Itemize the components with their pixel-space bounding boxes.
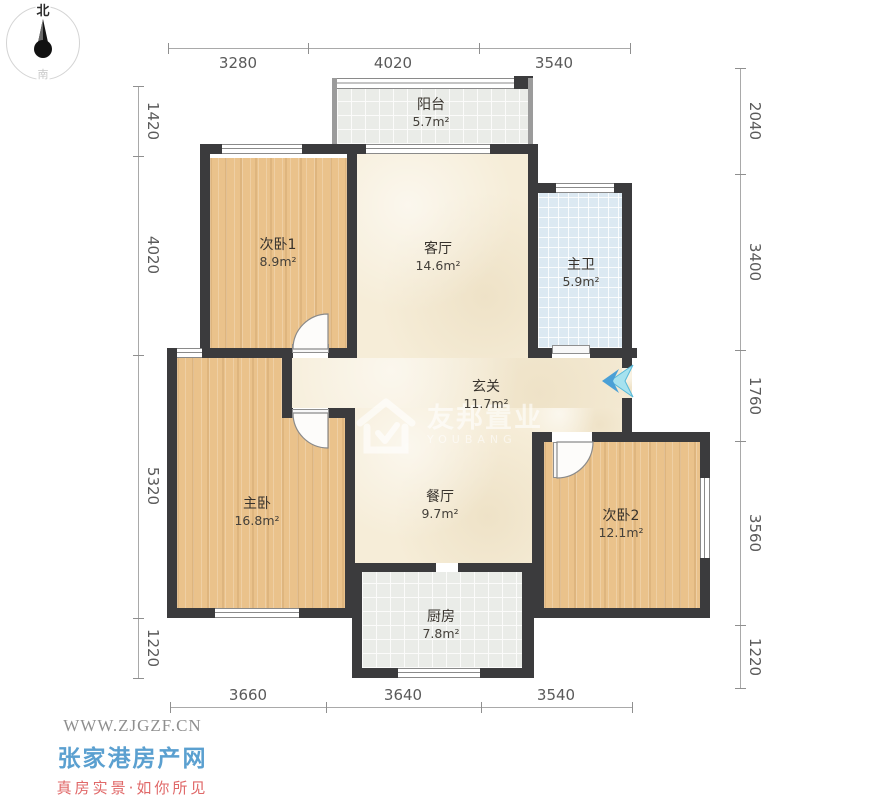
dim-top-3: 3540 [514, 54, 594, 72]
dim-bottom-3: 3540 [516, 686, 596, 704]
dim-tick [735, 625, 746, 626]
wall [205, 348, 293, 358]
dim-line-bottom [170, 707, 632, 708]
room-label-balcony: 阳台5.7m² [376, 96, 486, 130]
dim-line-left [138, 86, 139, 678]
dim-tick [133, 678, 144, 679]
wall [528, 144, 538, 358]
room-label-masterbath: 主卫5.9m² [526, 256, 636, 290]
room-label-kitchen: 厨房7.8m² [386, 608, 496, 642]
wall [200, 144, 210, 358]
balcony-door-window [366, 144, 490, 154]
door-bedroom2 [553, 442, 563, 478]
site-url-text: WWW.ZJGZF.CN [30, 716, 235, 736]
room-label-masterbed: 主卧16.8m² [202, 495, 312, 529]
door-masterbed [292, 409, 329, 418]
wall [458, 563, 532, 572]
dim-tick [630, 43, 631, 54]
dim-bottom-1: 3660 [208, 686, 288, 704]
wall [352, 563, 436, 572]
wall [352, 563, 362, 678]
dim-bottom-2: 3640 [363, 686, 443, 704]
wall [590, 348, 637, 358]
door-bedroom1 [292, 344, 329, 353]
dim-tick [735, 688, 746, 689]
dim-right-2: 3400 [746, 222, 764, 302]
dim-left-2: 4020 [144, 215, 162, 295]
dim-right-1: 2040 [746, 81, 764, 161]
room-label-living: 客厅14.6m² [383, 240, 493, 274]
dim-top-1: 3280 [198, 54, 278, 72]
room-label-bedroom1: 次卧18.9m² [223, 236, 333, 270]
wall [328, 348, 357, 358]
dim-tick [170, 702, 171, 713]
dim-tick [479, 43, 480, 54]
dim-tick [308, 43, 309, 54]
dim-tick [133, 86, 144, 87]
dim-line-top [168, 48, 630, 49]
room-masterbed-floor-upper [177, 358, 282, 418]
compass-icon: 北 南 [6, 6, 80, 80]
window [176, 348, 202, 358]
dim-tick [168, 43, 169, 54]
dim-tick [735, 68, 746, 69]
room-label-hall: 玄关11.7m² [431, 378, 541, 412]
wall [592, 432, 710, 442]
dim-tick [735, 441, 746, 442]
dim-tick [481, 702, 482, 713]
dim-tick [326, 702, 327, 713]
dim-tick [133, 618, 144, 619]
dim-right-5: 1220 [746, 617, 764, 697]
window [700, 478, 710, 558]
wall [528, 348, 552, 358]
entry-threshold [622, 368, 632, 398]
wall [167, 348, 177, 618]
wall [347, 144, 357, 358]
dim-top-2: 4020 [353, 54, 433, 72]
window [222, 144, 302, 154]
window [398, 668, 480, 678]
window [556, 183, 614, 193]
dim-right-3: 1760 [746, 356, 764, 436]
dim-tick [735, 350, 746, 351]
dim-right-4: 3560 [746, 493, 764, 573]
window [215, 608, 299, 618]
dim-left-1: 1420 [144, 81, 162, 161]
dim-tick [133, 355, 144, 356]
site-slogan-text: 真房实景·如你所见 [30, 777, 235, 798]
room-label-dining: 餐厅9.7m² [385, 488, 495, 522]
balcony-side-rail [528, 78, 533, 144]
balcony-side-rail [332, 78, 337, 144]
wall [522, 563, 534, 668]
dim-line-right [740, 68, 741, 688]
room-label-bedroom2: 次卧212.1m² [566, 507, 676, 541]
compass-south-label: 南 [37, 66, 50, 82]
dim-left-4: 1220 [144, 608, 162, 688]
watermark-sub-text: YOUBANG [427, 433, 543, 447]
wall [532, 608, 710, 618]
dim-left-3: 5320 [144, 446, 162, 526]
dim-tick [133, 156, 144, 157]
compass-north-label: 北 [35, 0, 50, 19]
house-watermark-icon [355, 397, 417, 455]
site-name-text: 张家港房产网 [30, 739, 235, 773]
site-branding: WWW.ZJGZF.CN 张家港房产网 真房实景·如你所见 [30, 716, 235, 798]
door-masterbath [552, 345, 590, 354]
floorplan-image: 北 南 友邦置业 YOUBANG [0, 0, 878, 800]
dim-tick [735, 174, 746, 175]
dim-tick [632, 702, 633, 713]
balcony-window-band [332, 78, 533, 89]
